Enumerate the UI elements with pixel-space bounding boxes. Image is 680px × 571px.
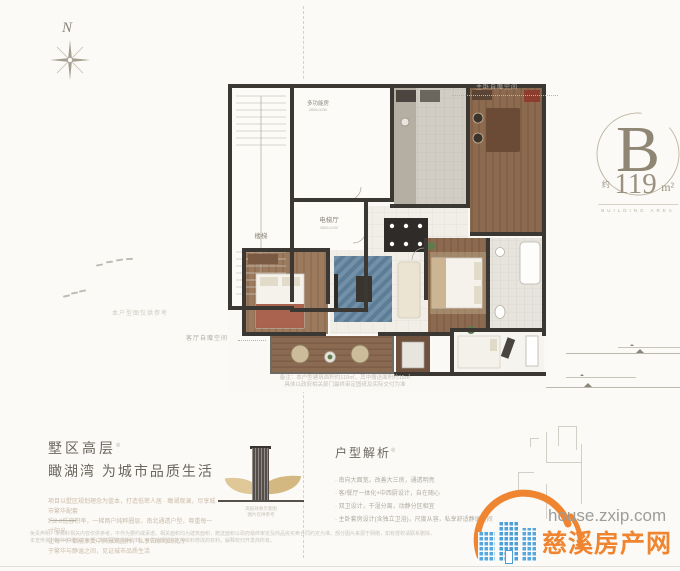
building-door <box>505 550 513 564</box>
mountain-icon <box>630 344 634 346</box>
landscape-line <box>528 387 680 388</box>
badge-area-unit: m² <box>661 180 674 194</box>
tower-caption-line2: 图片仅供参考 <box>218 512 304 518</box>
compass-point-s <box>68 60 72 80</box>
sign-board <box>526 336 538 366</box>
stove-icon <box>396 90 416 102</box>
building-icon <box>521 528 536 562</box>
watermark: house.zxip.com 慈溪房产网 <box>456 488 680 568</box>
bird-icon <box>106 261 113 263</box>
badge-area-value: 119 <box>614 168 656 200</box>
plan-note-line1: 备注：本户型建筑面积约119㎡，其中赠送面积约15㎡ <box>240 375 450 382</box>
compass-north-label: N <box>62 20 72 37</box>
right-title-sup: ◎ <box>391 447 397 453</box>
paragraph-line: 项目以墅区规划理念为蓝本，打造低密人居 · 瞰湖观澜，尽享城市繁华配套 <box>48 497 218 517</box>
sink-unit-icon <box>420 90 440 102</box>
plan-note-line2: 具体以政府相关部门最终审定图纸及实际交付为准 <box>240 382 450 389</box>
tower-body <box>252 448 269 500</box>
compass: N <box>48 20 92 88</box>
bird-icon <box>71 292 78 294</box>
red-cabinet-icon <box>524 90 540 102</box>
stool-icon <box>473 133 483 143</box>
plant-icon <box>427 242 435 250</box>
kitchen-island <box>486 108 520 152</box>
bathtub-icon <box>520 242 540 284</box>
pillow <box>474 262 481 280</box>
badge-caption: BUILDING AREA <box>598 204 678 213</box>
tower-illustration: 高层效果示意图 图片仅供参考 <box>218 446 304 518</box>
label-elevator-dims: 2600×2100 <box>320 226 338 230</box>
sink-icon <box>401 118 409 126</box>
plant-icon <box>328 355 333 360</box>
badge-area-prefix: 约 <box>602 180 610 189</box>
desk <box>248 254 278 264</box>
floorplan: 楼梯 电梯厅 2600×2100 多功能房 2800×3150 <box>228 80 546 392</box>
pillow <box>490 339 497 351</box>
floorplan-drawing: 楼梯 电梯厅 2600×2100 多功能房 2800×3150 <box>228 80 546 392</box>
dining-table <box>384 218 428 252</box>
compass-point-n <box>68 40 72 60</box>
right-title: 户型解析◎ <box>335 444 520 461</box>
paragraph-line: 于繁华与静谧之间，见证城市品质生活 <box>48 547 218 557</box>
bird-marks <box>58 254 148 304</box>
bullet-line: · 南向大面宽，改善大三房，通透明亮 <box>335 475 520 488</box>
annotation-gift-top-leader <box>452 95 558 96</box>
watermark-site-name: 慈溪房产网 <box>542 524 672 560</box>
fine-print-dash <box>50 520 76 521</box>
bird-icon <box>79 289 86 292</box>
bird-icon <box>96 263 103 266</box>
badge-area: 约 119 m² <box>588 168 680 201</box>
label-elevator-hall: 电梯厅 <box>319 215 339 224</box>
compass-rose-icon <box>48 38 92 82</box>
balcony-chair <box>291 345 309 363</box>
compass-point-w <box>50 58 70 62</box>
bird-icon <box>126 258 133 260</box>
tower-caption: 高层效果示意图 图片仅供参考 <box>218 506 304 518</box>
balcony-chair <box>351 345 369 363</box>
floorplan-poster: N <box>0 0 680 571</box>
annotation-gift-top: 主卧自赠空间 <box>476 82 518 91</box>
kitchen-counter <box>394 88 416 204</box>
building-icon <box>478 532 495 562</box>
plan-note: 备注：本户型建筑面积约119㎡，其中赠送面积约15㎡ 具体以政府相关部门最终审定… <box>240 375 450 389</box>
pillow <box>260 277 278 286</box>
annotation-gift-left-leader <box>238 340 266 341</box>
compass-center <box>67 57 72 62</box>
right-title-text: 户型解析 <box>335 446 391 460</box>
plan-reference-note: 本户型图仅供参考 <box>112 308 168 317</box>
annotation-gift-left: 客厅自赠空间 <box>186 333 228 342</box>
left-title-text: 墅区高层 <box>48 440 116 456</box>
pillow <box>474 286 481 304</box>
landscape-line <box>618 347 680 348</box>
left-paragraph: 项目以墅区规划理念为蓝本，打造低密人居 · 瞰湖观澜，尽享城市繁华配套 约2.0… <box>48 497 218 557</box>
label-stairs: 楼梯 <box>255 231 269 240</box>
mountain-icon <box>636 349 644 353</box>
mountain-icon <box>584 383 592 387</box>
bird-icon <box>63 294 70 297</box>
landscape-line <box>566 377 636 378</box>
label-multi-room-dims: 2800×3150 <box>309 108 327 112</box>
landscape-line <box>566 353 680 354</box>
left-title-sup: ◎ <box>116 442 123 448</box>
tower-baseline <box>218 500 304 502</box>
sofa <box>398 262 420 318</box>
toilet-icon <box>495 306 505 319</box>
compass-point-e <box>70 58 90 62</box>
bird-icon <box>116 259 123 261</box>
mountain-icon <box>580 374 584 376</box>
label-multi-room: 多功能房 <box>307 99 330 107</box>
blanket <box>432 258 446 308</box>
tv-console <box>334 274 338 308</box>
washer-icon <box>402 342 424 368</box>
basin-icon <box>496 248 505 257</box>
stool-icon <box>473 113 483 123</box>
watermark-url: house.zxip.com <box>548 506 666 526</box>
